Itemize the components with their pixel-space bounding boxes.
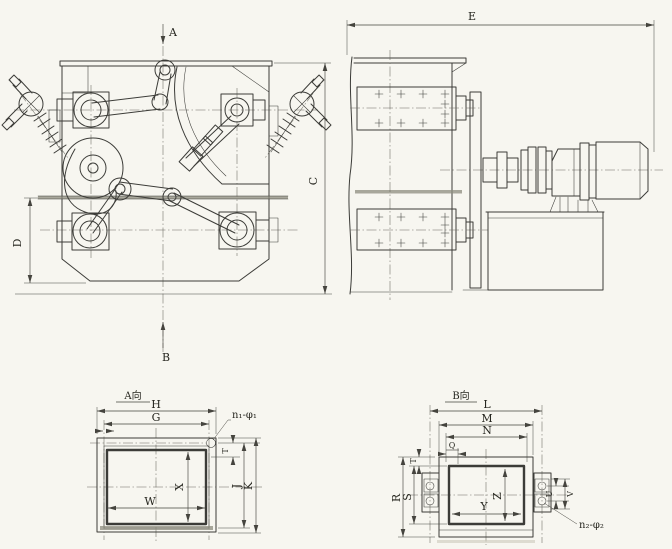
dim-label-s: S [401,493,414,501]
view-a-dimensions: H G W X T J K n₁-φ₁ [95,398,261,533]
view-a-flange [97,438,216,532]
bolt-note-a: n₁-φ₁ [232,410,257,421]
drive-shaft-assembly [440,92,663,288]
assembly-drawing: A B [0,0,672,549]
view-a-title: A向 [123,389,141,402]
view-a: A向 H G W X [87,389,262,543]
lower-bolt-plate [350,209,488,250]
motor-pedestal [463,212,604,290]
section-label-b: B [162,351,170,364]
dim-label-d: D [11,238,24,247]
dim-label-w: W [144,495,156,508]
dim-label-k: K [242,481,255,490]
dim-label-c: C [307,177,320,185]
dim-label-t-a: T [221,448,230,454]
view-b-dimensions: L M N Q R S T Y [390,398,604,537]
side-view: E [347,10,663,300]
spring-assembly-left [2,75,68,158]
dim-label-h: H [151,398,161,411]
dim-c: C [274,63,331,294]
upper-bolt-plate [350,87,480,130]
spring-assembly-right [265,75,331,158]
front-view: A B [2,24,332,364]
bolt-note-b: n₂-φ₂ [579,520,604,531]
dim-label-v: V [566,491,575,498]
section-label-a: A [168,26,178,39]
dim-label-n: N [482,424,492,437]
dim-label-g: G [152,411,161,424]
eccentric-assembly [63,138,131,214]
dim-label-t-b: T [409,458,418,464]
dim-label-x: X [173,483,186,491]
dim-label-u: U [545,490,554,497]
front-housing [15,61,332,294]
dim-d: D [11,198,86,283]
dim-label-e: E [468,10,476,23]
bearing-lower-right [219,212,269,249]
drawing-sheet: A B [0,0,672,549]
dim-label-y: Y [479,500,488,513]
dim-label-z: Z [491,492,504,500]
bolt-hole [207,439,216,448]
dim-label-l: L [483,398,491,411]
dim-e: E [347,10,654,152]
dim-label-q: Q [449,441,456,450]
view-b: B向 L [390,389,604,545]
bearing-lower-left [57,213,109,250]
view-b-title: B向 [452,389,469,402]
